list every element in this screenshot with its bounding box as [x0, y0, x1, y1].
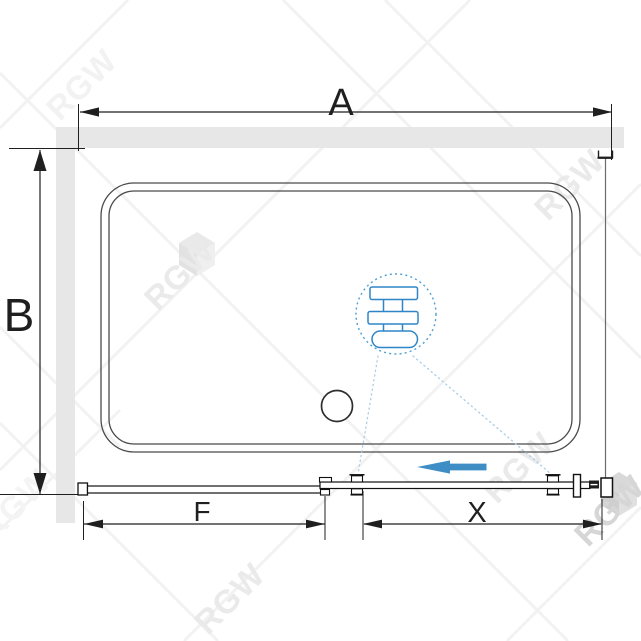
wall-left: [56, 127, 75, 523]
arrowhead-right-icon: [306, 520, 325, 529]
roller-body: [352, 489, 363, 494]
watermark-text: RGW: [476, 425, 561, 510]
watermark-text: RGW: [39, 42, 124, 127]
arrowhead-right-icon: [593, 107, 612, 116]
watermark-diagonal-lines: [0, 0, 641, 641]
wall-profile-left: [78, 483, 88, 495]
arrowhead-left-icon: [84, 520, 103, 529]
watermark-line: [0, 423, 218, 641]
roller-top-bar: [370, 287, 418, 300]
dimension-label-b: B: [4, 289, 35, 341]
arrowhead-left-icon: [363, 520, 382, 529]
watermark-line: [0, 73, 568, 641]
dimension-label-x: X: [467, 497, 486, 529]
door-bracket-top: [320, 478, 332, 483]
door-handle-profile: [574, 475, 581, 498]
watermark-text: RGW: [187, 556, 272, 641]
watermark-layer: RGW RGW RGW RGW RGW RGW RGW: [0, 0, 641, 641]
arrowhead-up-icon: [34, 150, 47, 171]
roller-wheel: [372, 331, 418, 348]
wall-top: [56, 127, 624, 148]
roller-middle-bar: [368, 312, 418, 325]
slide-direction-arrow-icon: [417, 460, 487, 473]
door-bracket-bottom: [321, 490, 330, 496]
wall-profile-right: [601, 478, 613, 497]
sliding-door-panel: [320, 482, 590, 489]
side-glass-panel: [598, 151, 614, 479]
roller-body: [548, 476, 559, 482]
leader-line-right: [413, 356, 551, 474]
fixed-glass-panel: [88, 486, 328, 493]
shower-enclosure-scheme: RGW RGW RGW RGW RGW RGW RGW A: [0, 0, 641, 641]
roller-detail-mechanism: [368, 287, 418, 348]
roller-body: [548, 489, 559, 494]
roller-body: [352, 476, 363, 482]
dimension-label-f: F: [193, 496, 210, 527]
drain-circle: [322, 391, 353, 422]
dimension-label-a: A: [328, 82, 354, 124]
